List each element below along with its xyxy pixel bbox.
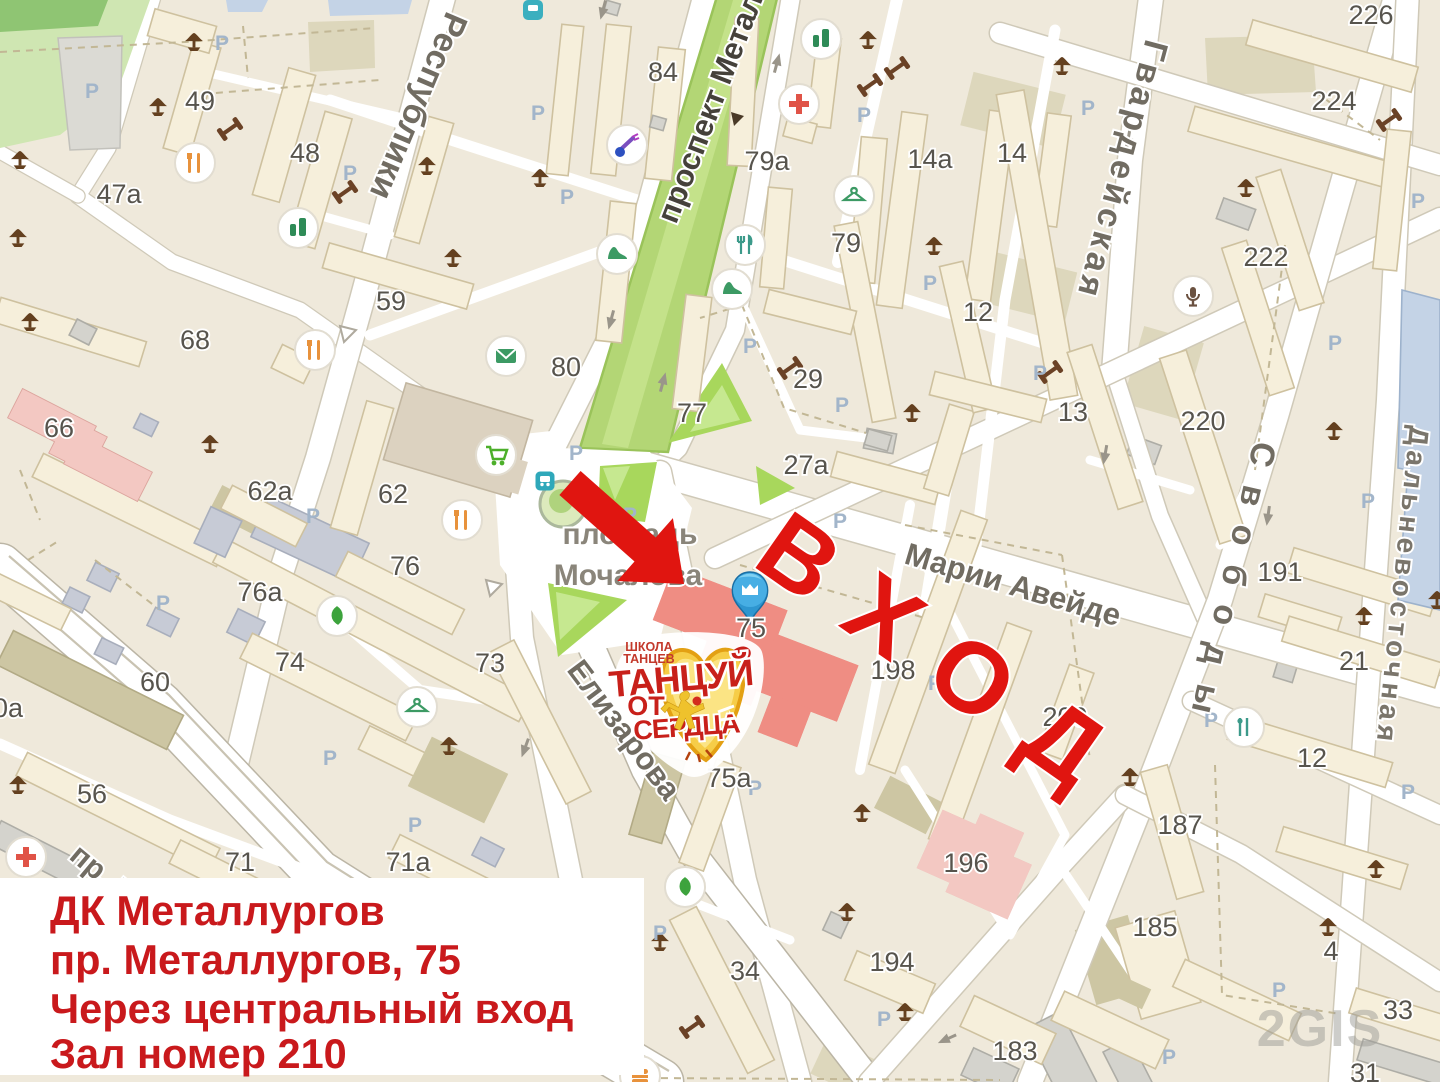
svg-text:P: P <box>1081 97 1095 120</box>
svg-text:79: 79 <box>831 228 861 258</box>
svg-text:P: P <box>857 104 871 127</box>
svg-text:29: 29 <box>793 364 823 394</box>
svg-text:P: P <box>569 442 583 465</box>
svg-text:73: 73 <box>475 648 505 678</box>
svg-text:66: 66 <box>44 413 74 443</box>
svg-text:34: 34 <box>730 956 760 986</box>
svg-text:31: 31 <box>1350 1058 1380 1082</box>
svg-text:27а: 27а <box>783 450 829 480</box>
svg-text:84: 84 <box>648 57 678 87</box>
svg-text:62а: 62а <box>247 476 293 506</box>
svg-text:194: 194 <box>869 947 914 977</box>
svg-text:P: P <box>560 186 574 209</box>
svg-text:ДК Металлургов: ДК Металлургов <box>50 887 385 934</box>
svg-text:13: 13 <box>1058 397 1088 427</box>
svg-text:P: P <box>531 102 545 125</box>
svg-text:P: P <box>156 592 170 615</box>
svg-text:56: 56 <box>77 779 107 809</box>
svg-text:P: P <box>306 505 320 528</box>
svg-text:P: P <box>1401 781 1415 804</box>
svg-text:191: 191 <box>1257 557 1302 587</box>
svg-text:76а: 76а <box>237 577 283 607</box>
svg-text:P: P <box>1162 1046 1176 1069</box>
svg-text:224: 224 <box>1311 86 1356 116</box>
svg-text:79а: 79а <box>744 146 790 176</box>
svg-text:220: 220 <box>1180 406 1225 436</box>
svg-text:196: 196 <box>943 848 988 878</box>
svg-text:P: P <box>323 747 337 770</box>
svg-text:пр. Металлургов, 75: пр. Металлургов, 75 <box>50 936 461 983</box>
svg-text:P: P <box>1411 190 1425 213</box>
svg-text:12: 12 <box>963 297 993 327</box>
svg-text:2GIS: 2GIS <box>1257 1000 1384 1058</box>
svg-text:4: 4 <box>1323 936 1338 966</box>
svg-text:80: 80 <box>551 352 581 382</box>
svg-text:183: 183 <box>992 1036 1037 1066</box>
svg-text:P: P <box>923 272 937 295</box>
svg-text:P: P <box>835 394 849 417</box>
svg-text:62: 62 <box>378 479 408 509</box>
svg-text:P: P <box>877 1008 891 1031</box>
svg-text:60: 60 <box>140 667 170 697</box>
svg-text:74: 74 <box>275 647 305 677</box>
svg-text:Через центральный вход: Через центральный вход <box>50 985 573 1032</box>
svg-text:P: P <box>408 814 422 837</box>
svg-text:71а: 71а <box>385 847 431 877</box>
svg-text:77: 77 <box>677 398 707 428</box>
svg-text:226: 226 <box>1348 0 1393 30</box>
svg-text:P: P <box>215 32 229 55</box>
svg-text:P: P <box>653 922 667 945</box>
svg-text:P: P <box>1033 362 1047 385</box>
svg-text:P: P <box>343 162 357 185</box>
svg-text:59: 59 <box>376 286 406 316</box>
svg-text:Зал номер 210: Зал номер 210 <box>50 1030 347 1077</box>
svg-text:P: P <box>1328 332 1342 355</box>
svg-text:222: 222 <box>1243 242 1288 272</box>
svg-text:P: P <box>85 80 99 103</box>
svg-text:48: 48 <box>290 138 320 168</box>
svg-text:71: 71 <box>225 847 255 877</box>
svg-text:0а: 0а <box>0 693 24 723</box>
svg-text:68: 68 <box>180 325 210 355</box>
svg-text:P: P <box>743 335 757 358</box>
svg-text:P: P <box>1272 979 1286 1002</box>
svg-text:47а: 47а <box>96 179 142 209</box>
svg-text:21: 21 <box>1339 646 1369 676</box>
svg-text:P: P <box>1361 490 1375 513</box>
svg-text:76: 76 <box>390 551 420 581</box>
svg-text:12: 12 <box>1297 743 1327 773</box>
svg-text:14а: 14а <box>907 144 953 174</box>
svg-text:49: 49 <box>185 86 215 116</box>
svg-text:14: 14 <box>997 138 1027 168</box>
svg-text:187: 187 <box>1157 810 1202 840</box>
svg-text:33: 33 <box>1383 995 1413 1025</box>
svg-text:185: 185 <box>1132 912 1177 942</box>
